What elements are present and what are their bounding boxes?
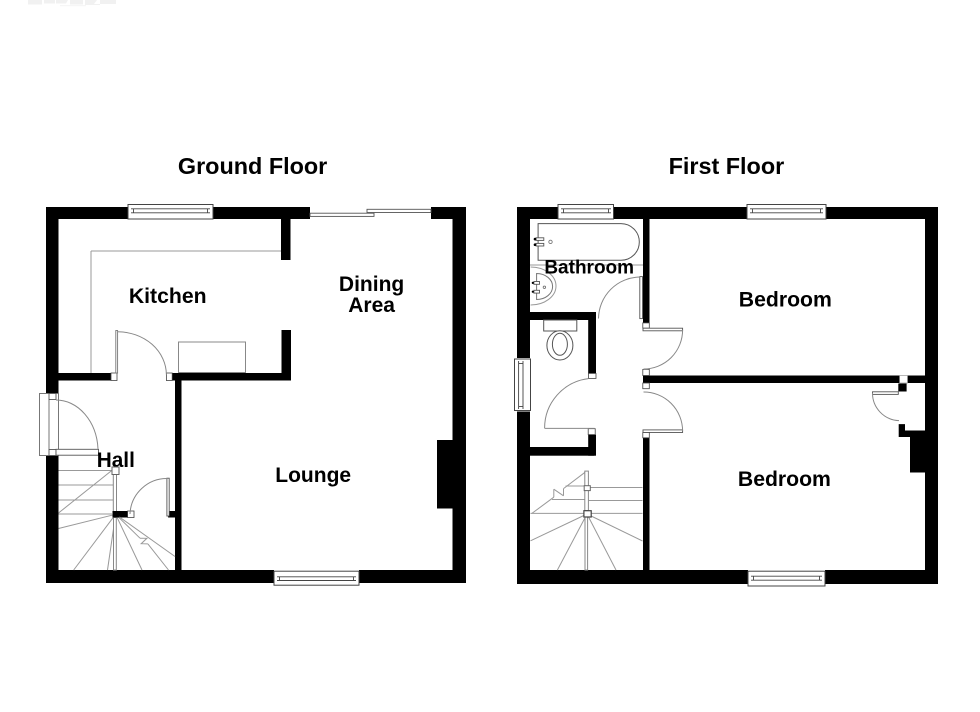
svg-text:Bedroom: Bedroom bbox=[739, 289, 832, 312]
svg-text:First Floor: First Floor bbox=[669, 153, 785, 179]
svg-text:Dining: Dining bbox=[339, 273, 404, 296]
svg-text:Lounge: Lounge bbox=[275, 464, 351, 487]
svg-text:Bathroom: Bathroom bbox=[544, 258, 634, 279]
svg-text:Bedroom: Bedroom bbox=[738, 468, 831, 491]
svg-text:Area: Area bbox=[348, 294, 395, 317]
svg-text:Ground Floor: Ground Floor bbox=[178, 153, 327, 179]
svg-text:Kitchen: Kitchen bbox=[129, 285, 207, 308]
